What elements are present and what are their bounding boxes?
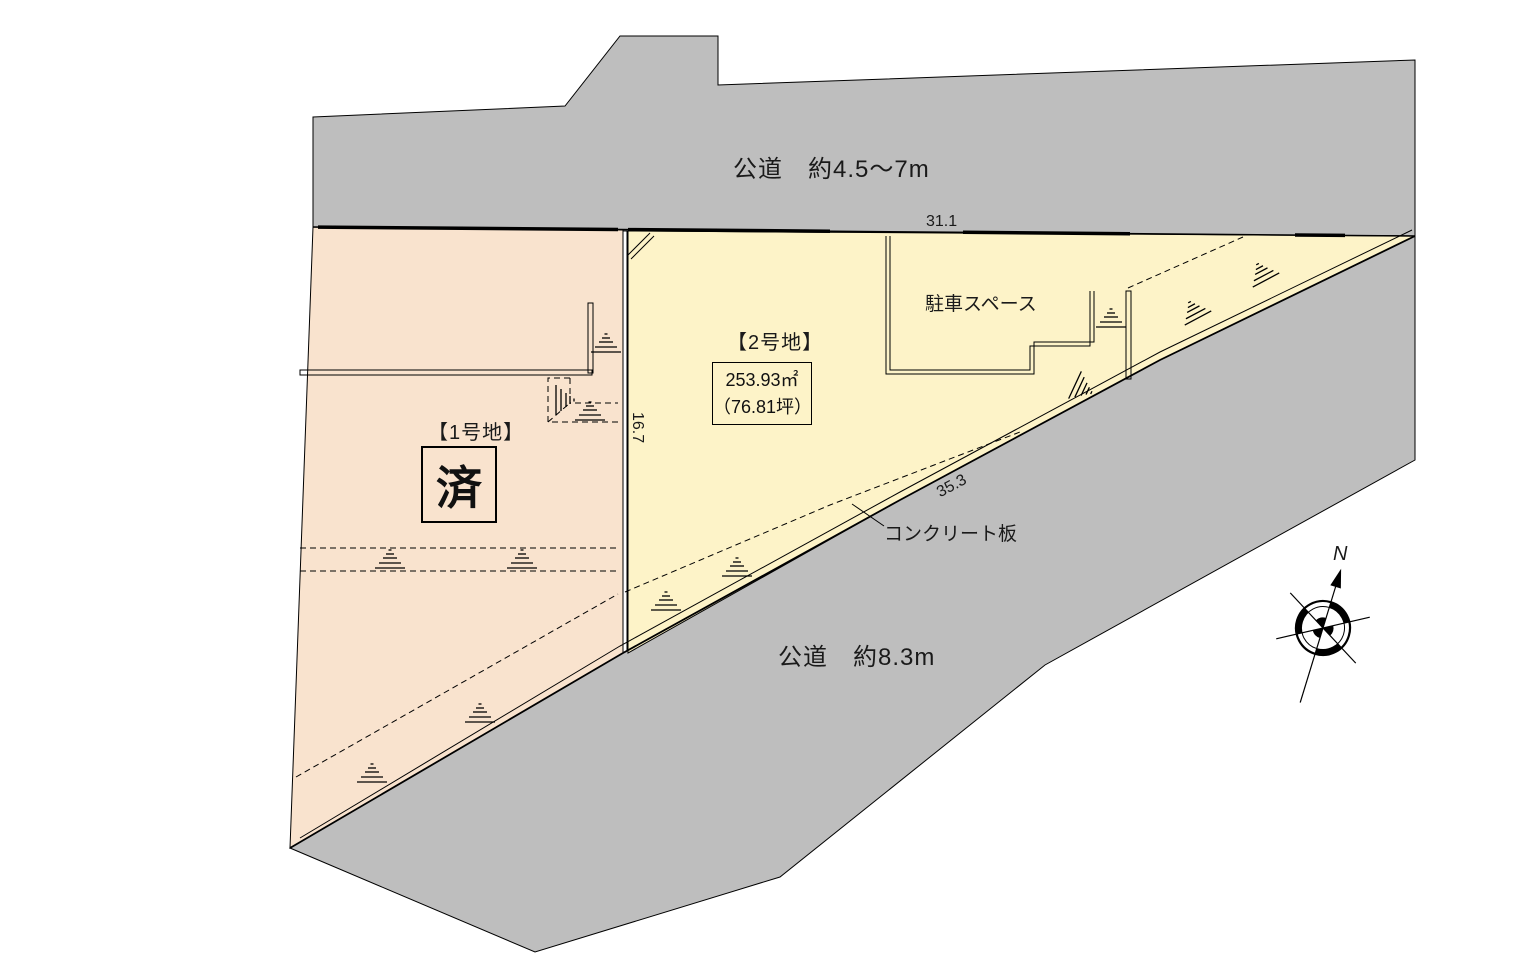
compass-north-label: N xyxy=(1333,543,1347,566)
compass-rose xyxy=(1260,557,1380,715)
lot1-sold-box: 済 xyxy=(421,446,497,523)
concrete-plate-label: コンクリート板 xyxy=(884,519,1017,546)
top-road-label: 公道 約4.5〜7m xyxy=(733,149,930,184)
bottom-road-label: 公道 約8.3m xyxy=(778,637,935,672)
north-arrow-head xyxy=(1330,567,1346,588)
lot1-sold-label: 済 xyxy=(436,452,482,518)
dimension-left-16-7: 16.7 xyxy=(628,412,646,443)
lot2-title: 【2号地】 xyxy=(727,326,823,355)
site-plan-drawing xyxy=(0,0,1513,972)
lot2-area-box: 253.93㎡ （76.81坪） xyxy=(712,362,812,425)
lot2-area-tsubo: （76.81坪） xyxy=(713,394,811,420)
parking-space-label: 駐車スペース xyxy=(925,289,1037,316)
lot2-area-sqm: 253.93㎡ xyxy=(725,367,798,393)
site-plan-canvas: 公道 約4.5〜7m 公道 約8.3m 【1号地】 済 【2号地】 253.93… xyxy=(0,0,1513,972)
lot1-title: 【1号地】 xyxy=(428,416,524,445)
top-road-area xyxy=(313,36,1415,236)
dimension-top-31-1: 31.1 xyxy=(926,213,957,231)
north-arrow-line xyxy=(1300,571,1340,703)
